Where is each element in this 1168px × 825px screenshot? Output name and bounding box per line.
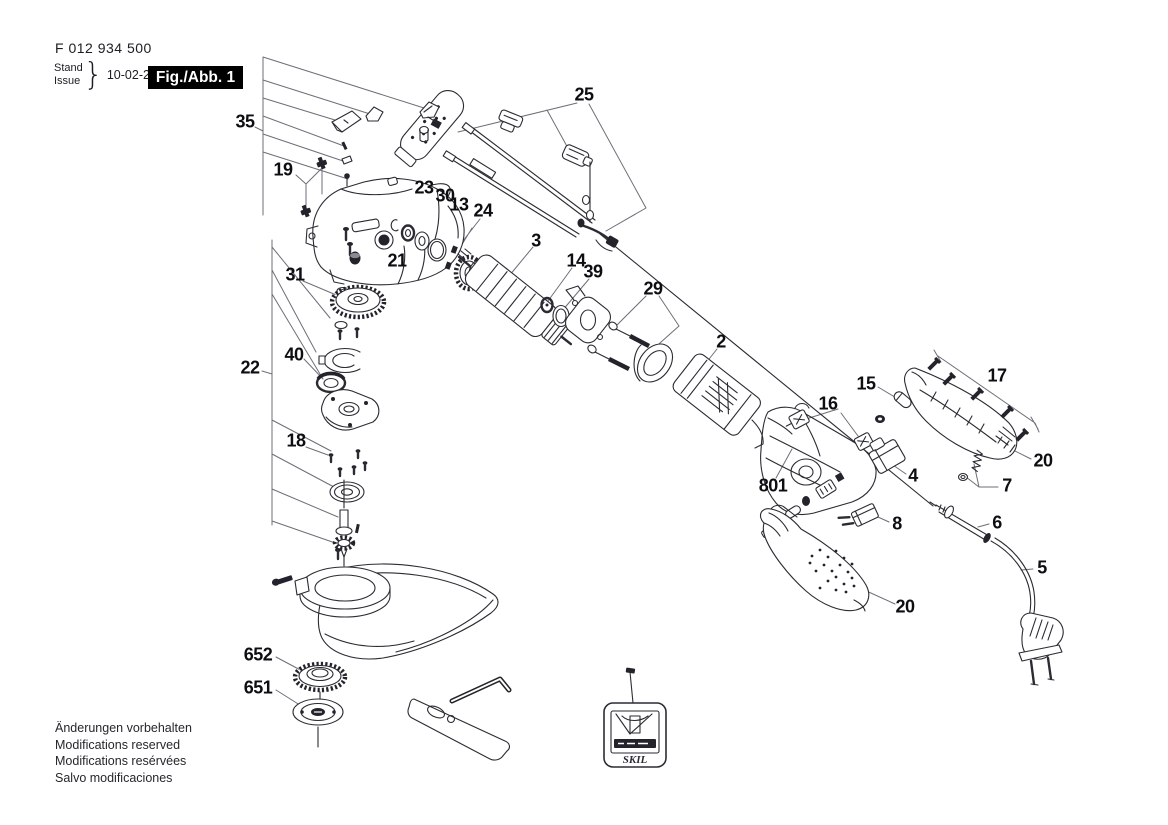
air-baffle	[630, 337, 679, 389]
inner-flange-651	[293, 699, 343, 747]
notice-line-fr: Modifications resérvées	[55, 753, 192, 770]
armature	[458, 249, 583, 358]
wheel-guard	[271, 548, 498, 659]
wrench-set	[408, 679, 509, 760]
cable-connector	[839, 502, 879, 532]
notice-line-es: Salvo modificaciones	[55, 770, 192, 787]
spindle-stack	[317, 287, 384, 566]
stator	[670, 351, 763, 448]
exploded-diagram: SKIL	[0, 0, 1168, 825]
bearing-bridge	[562, 286, 615, 347]
top-handle-half	[905, 368, 1017, 459]
lock-button	[875, 390, 913, 423]
skil-brand-text: SKIL	[623, 754, 648, 766]
mains-plug	[1019, 613, 1063, 685]
bottom-handle-half	[760, 505, 868, 611]
brand-tag: SKIL	[604, 667, 666, 767]
parts-diagram-page: F 012 934 500 Stand Issue } 10-02-24 Fig…	[0, 0, 1168, 825]
notice-line-en: Modifications reserved	[55, 737, 192, 754]
motor-housing	[761, 407, 876, 514]
spring-and-cap	[959, 450, 983, 481]
gear-housing	[306, 177, 464, 285]
outer-flange-652	[295, 664, 345, 702]
modifications-notice: Änderungen vorbehalten Modifications res…	[55, 720, 192, 786]
cord-guard	[930, 502, 992, 544]
notice-line-de: Änderungen vorbehalten	[55, 720, 192, 737]
